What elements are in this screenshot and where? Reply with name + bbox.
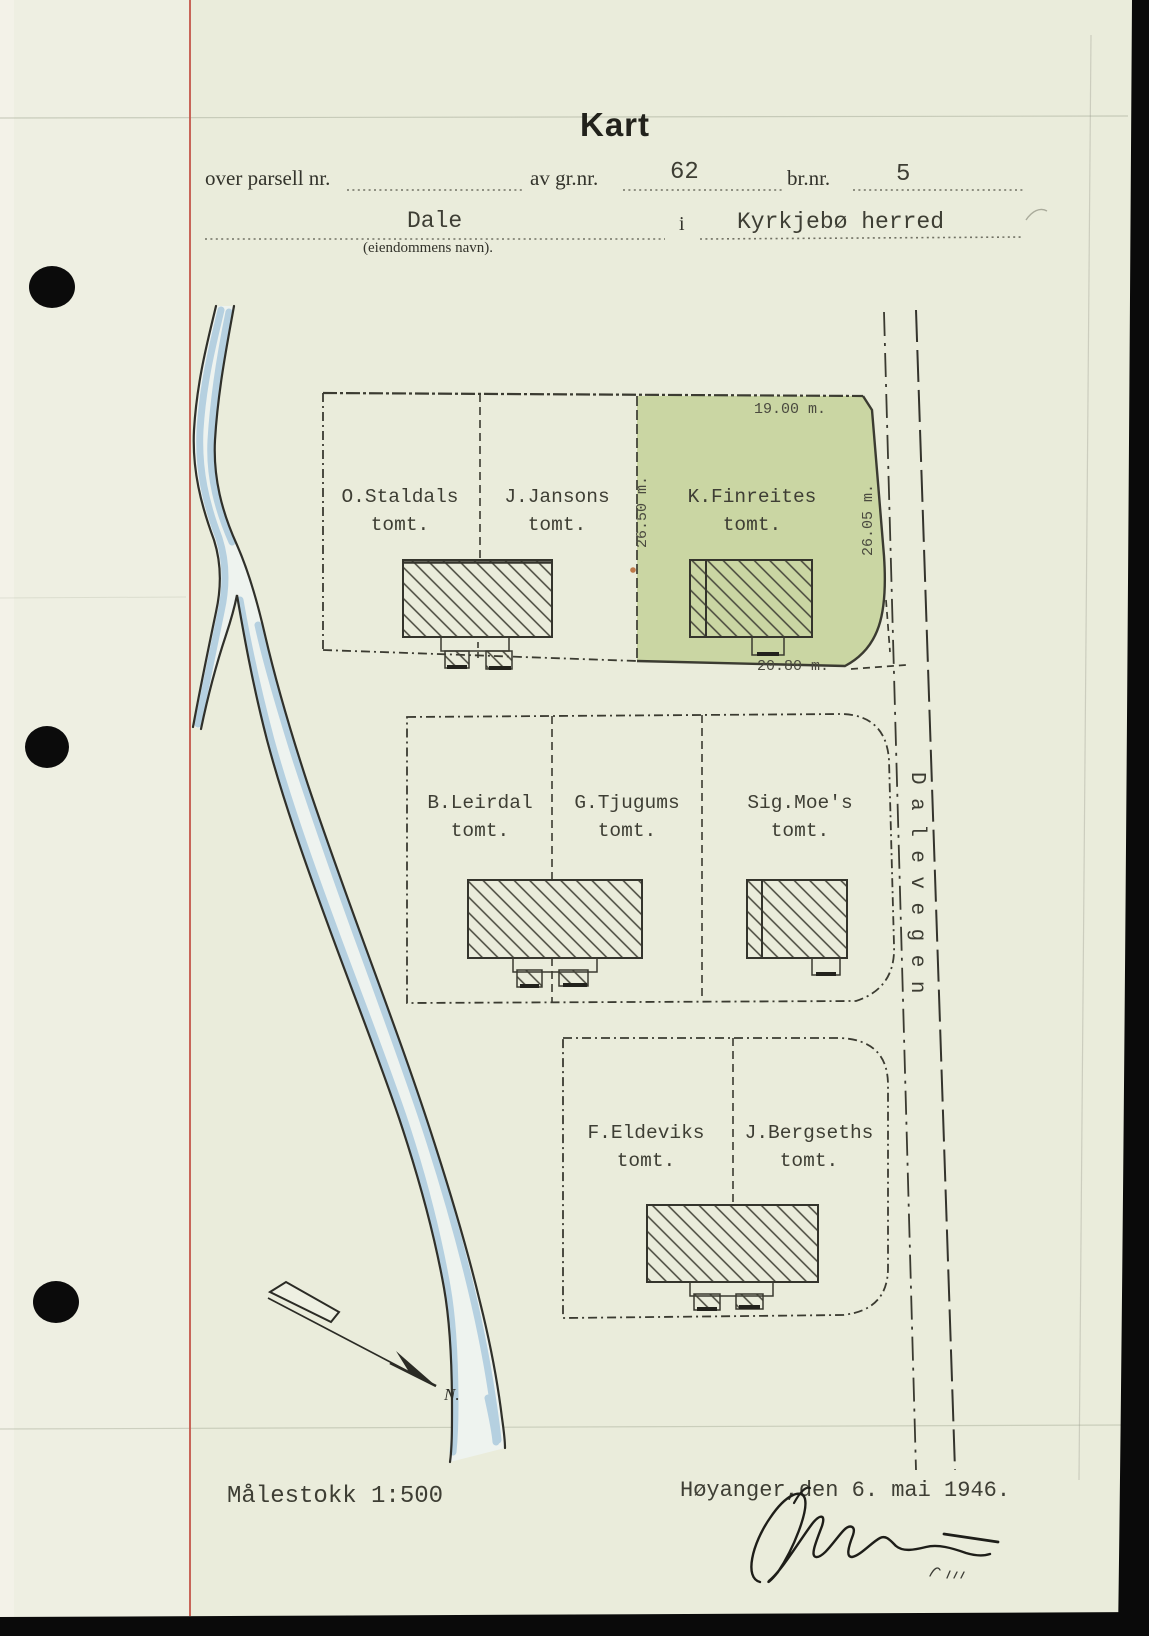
scanned-map-document: Kart over parsell nr. av gr.nr. 62 br.nr… xyxy=(0,0,1149,1636)
parcel-label: B.Leirdal xyxy=(427,792,532,814)
parcel-label: K.Finreites xyxy=(688,486,817,508)
property-name: Dale xyxy=(407,208,462,234)
parcel-label-suffix: tomt. xyxy=(780,1150,839,1172)
measurement-bottom: 20.80 m. xyxy=(757,658,829,675)
parcel-label-suffix: tomt. xyxy=(617,1150,676,1172)
district-name: Kyrkjebø herred xyxy=(737,209,944,235)
parcel-label-suffix: tomt. xyxy=(528,514,587,536)
parcel-label: F.Eldeviks xyxy=(587,1122,704,1144)
field-label-gnr: av gr.nr. xyxy=(530,166,598,190)
page-title: Kart xyxy=(580,106,650,143)
parcel-label: G.Tjugums xyxy=(574,792,679,814)
ink-speck xyxy=(630,567,636,573)
bnr-value: 5 xyxy=(896,161,910,188)
in-label: i xyxy=(679,213,685,235)
punch-hole xyxy=(25,726,69,768)
north-label: N. xyxy=(443,1385,460,1404)
measurement-right: 26.05 m. xyxy=(860,484,877,556)
place-date-text: Høyanger,den 6. mai 1946. xyxy=(680,1478,1010,1503)
paper-left-margin xyxy=(0,0,190,1636)
measurement-top: 19.00 m. xyxy=(754,401,826,418)
parcel-label: Sig.Moe's xyxy=(747,792,852,814)
parcel-label-suffix: tomt. xyxy=(723,514,782,536)
punch-hole xyxy=(29,266,75,308)
property-caption: (eiendommens navn). xyxy=(363,240,493,256)
paper-left-edge xyxy=(0,0,14,1636)
parcel-label-suffix: tomt. xyxy=(771,820,830,842)
map-canvas: Kart over parsell nr. av gr.nr. 62 br.nr… xyxy=(0,0,1149,1636)
parcel-label: J.Bergseths xyxy=(745,1122,874,1144)
field-label-bnr: br.nr. xyxy=(787,166,830,190)
scale-text: Målestokk 1:500 xyxy=(227,1483,443,1510)
road-name-label: Dalevegen xyxy=(905,772,928,1007)
parcel-label-suffix: tomt. xyxy=(451,820,510,842)
field-label-parcel: over parsell nr. xyxy=(205,166,330,190)
parcel-label-suffix: tomt. xyxy=(371,514,430,536)
parcel-label: J.Jansons xyxy=(504,486,609,508)
gnr-value: 62 xyxy=(670,159,699,186)
parcel-label-suffix: tomt. xyxy=(598,820,657,842)
punch-hole xyxy=(33,1281,79,1323)
measurement-left: 26.50 m. xyxy=(634,476,651,548)
parcel-label: O.Staldals xyxy=(341,486,458,508)
